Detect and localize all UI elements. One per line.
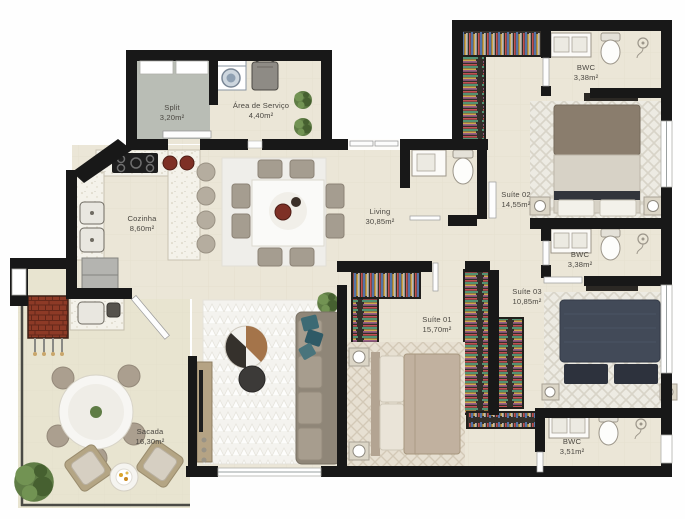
entry-door-icon: [350, 141, 373, 146]
room-label-cozinha: Cozinha 8,60m²: [128, 214, 157, 234]
room-label-suite-03: Suíte 03 10,85m²: [512, 287, 542, 307]
suite02-closet: [460, 56, 485, 146]
laundry-basket-icon: [252, 59, 278, 91]
washing-machine-icon: [216, 60, 246, 90]
room-label-bwc-top: BWC 3,38m²: [574, 63, 599, 83]
balcony-sink-icon: [78, 302, 104, 324]
suite02-bed-group: [530, 93, 662, 221]
pillow: [600, 200, 636, 216]
floor-plan: Split 3,20m² Área de Serviço 4,40m² Cozi…: [0, 0, 685, 519]
tv-console-icon: [197, 362, 212, 463]
pillow: [614, 364, 658, 384]
suite03-bed-group: [542, 284, 677, 410]
shoe-rack: [467, 412, 537, 428]
dining-area: [222, 158, 344, 266]
snack-table: [110, 463, 138, 491]
room-label-living: Living 30,85m²: [366, 207, 395, 227]
suite02-bed-icon: [554, 105, 640, 155]
lavabo-toilet-icon: [453, 150, 473, 158]
room-label-split: Split 3,20m²: [160, 103, 185, 123]
room-label-area-de-servico: Área de Serviço 4,40m²: [233, 101, 289, 121]
living-area: [197, 292, 340, 464]
lamp-icon: [535, 201, 546, 212]
pillow: [380, 404, 404, 450]
pillow: [558, 200, 594, 216]
sofa-icon: [296, 312, 340, 464]
fruit-bowl-icon: [163, 156, 177, 170]
hall-closet: [497, 318, 523, 408]
suite01-headboard: [371, 352, 380, 456]
room-label-suite-01: Suíte 01 15,70m²: [422, 315, 452, 335]
suite01-closet: [352, 298, 378, 348]
room-label-bwc-middle: BWC 3,38m²: [568, 250, 593, 270]
suite01-bed-group: [347, 342, 465, 466]
room-label-suite-02: Suíte 02 14,55m²: [501, 190, 531, 210]
fruit-bowl-icon: [180, 156, 194, 170]
lamp-icon: [353, 351, 365, 363]
lamp-icon: [648, 201, 659, 212]
suite01-bed-icon: [404, 354, 460, 454]
suite03-bed-icon: [560, 300, 660, 362]
entry-door-icon: [375, 141, 398, 146]
suite02-closet: [458, 30, 544, 56]
barbecue-grill-icon: [28, 296, 68, 338]
room-label-bwc-bottom: BWC 3,51m²: [560, 437, 585, 457]
suite01-closet: [352, 272, 420, 298]
kettle-icon: [107, 303, 120, 317]
lamp-icon: [353, 445, 365, 457]
lamp-icon: [545, 387, 555, 397]
suite01-closet: [464, 270, 489, 414]
pillow: [564, 364, 608, 384]
room-label-sacada: Sacada 16,30m²: [136, 427, 165, 447]
pillow: [380, 356, 404, 402]
